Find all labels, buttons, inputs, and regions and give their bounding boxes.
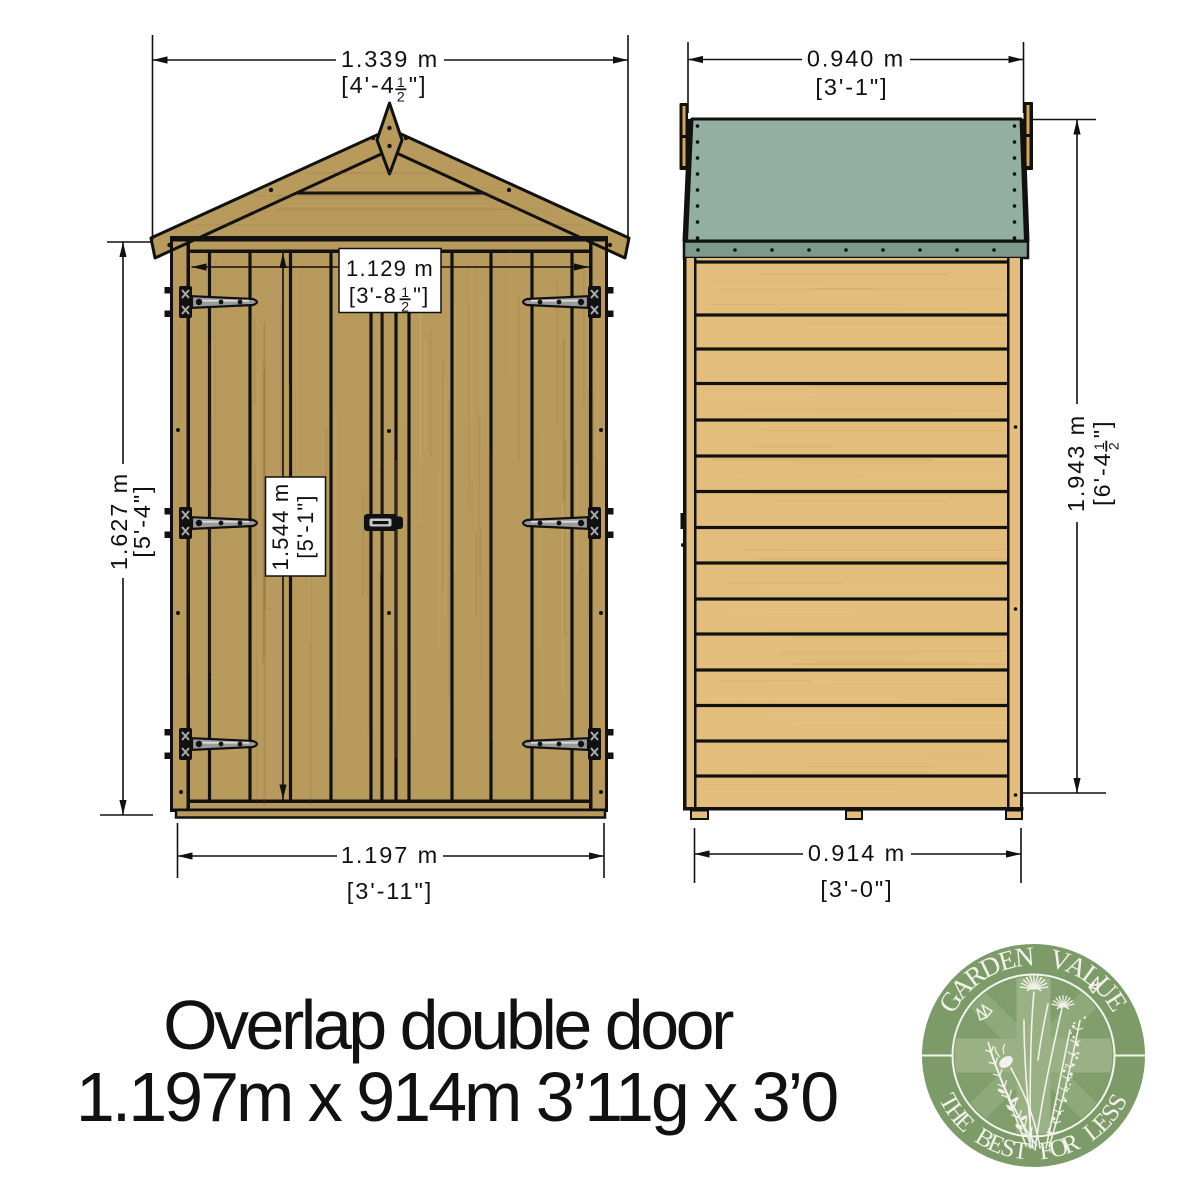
svg-text:2: 2: [401, 299, 409, 315]
svg-text:1.129 m: 1.129 m: [346, 256, 434, 281]
svg-text:1.197m x 914m 3’11g x 3’0: 1.197m x 914m 3’11g x 3’0: [76, 1058, 837, 1136]
svg-text:"]: "]: [409, 72, 428, 98]
svg-text:"]: "]: [413, 283, 429, 308]
svg-text:2: 2: [397, 89, 405, 105]
svg-text:0.914 m: 0.914 m: [808, 840, 906, 866]
svg-text:0.940 m: 0.940 m: [807, 46, 905, 72]
svg-text:1.197 m: 1.197 m: [341, 842, 439, 868]
svg-text:[5'-1"]: [5'-1"]: [293, 494, 318, 558]
svg-text:1.339 m: 1.339 m: [341, 46, 439, 72]
svg-text:1.544 m: 1.544 m: [268, 483, 293, 571]
svg-text:2: 2: [1106, 442, 1122, 450]
svg-text:[4'-4: [4'-4: [341, 72, 395, 98]
svg-text:[3'-11"]: [3'-11"]: [347, 878, 433, 904]
svg-text:[3'-1"]: [3'-1"]: [815, 74, 888, 100]
svg-text:[3'-0"]: [3'-0"]: [820, 876, 893, 902]
svg-text:[5'-4"]: [5'-4"]: [129, 484, 155, 557]
svg-text:[3'-8: [3'-8: [349, 283, 397, 308]
svg-text:1.943 m: 1.943 m: [1063, 414, 1089, 512]
svg-text:Overlap double door: Overlap double door: [163, 986, 734, 1064]
svg-text:N: N: [1014, 941, 1036, 973]
svg-text:[6'-4: [6'-4: [1089, 451, 1115, 505]
svg-text:"]: "]: [1089, 420, 1115, 439]
